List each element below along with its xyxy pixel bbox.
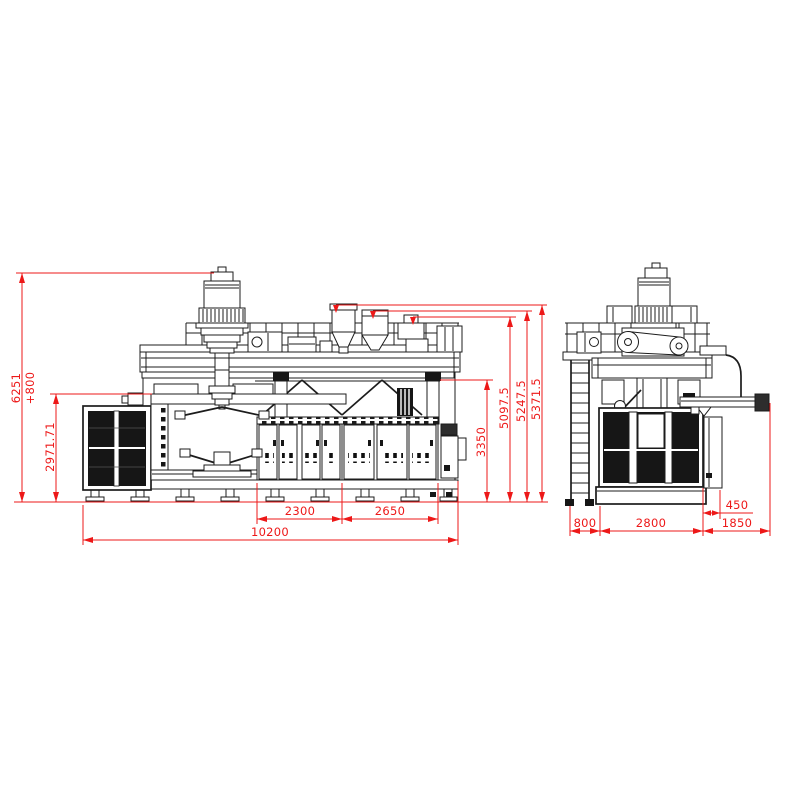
bay-width-1-label: 2300 — [285, 504, 315, 518]
overall-length-label: 10200 — [251, 525, 289, 539]
machine-drawing: 6251 +800 2971.71 3350 5097.5 5247.5 537 — [0, 0, 800, 800]
ladder — [565, 357, 594, 506]
machine-depth-label: 2800 — [636, 516, 666, 530]
overall-height-extra-label: +800 — [23, 372, 37, 405]
door-bank-2 — [342, 424, 438, 480]
discharge-depth-label: 1850 — [722, 516, 752, 530]
panel-offset-label: 450 — [726, 498, 749, 512]
drive-motor-side — [607, 263, 697, 328]
ladder-depth-label: 800 — [574, 516, 597, 530]
power-cabinet — [83, 406, 151, 490]
front-view — [83, 267, 466, 501]
drawing-canvas: 6251 +800 2971.71 3350 5097.5 5247.5 537 — [0, 0, 800, 800]
vent-strip — [257, 417, 438, 424]
door-bank-1 — [257, 424, 342, 480]
hopper-2 — [362, 310, 388, 350]
side-main-beam — [592, 358, 712, 378]
end-bracket — [441, 372, 466, 480]
clamp-height-label: 2971.71 — [43, 422, 57, 472]
control-panel — [704, 417, 722, 488]
belt-drive — [577, 328, 688, 356]
overall-height-label: 6251 — [9, 373, 23, 403]
ref-height-mid-label: 5247.5 — [514, 380, 528, 422]
subframe-height-label: 3350 — [474, 427, 488, 457]
bay-width-2-label: 2650 — [375, 504, 405, 518]
ref-height-small-label: 5097.5 — [497, 387, 511, 429]
side-view — [563, 263, 769, 506]
ref-height-tall-label: 5371.5 — [529, 378, 543, 420]
side-base — [596, 487, 706, 504]
side-cabinet — [599, 408, 703, 487]
dim-panel-offset: 450 — [703, 490, 753, 519]
